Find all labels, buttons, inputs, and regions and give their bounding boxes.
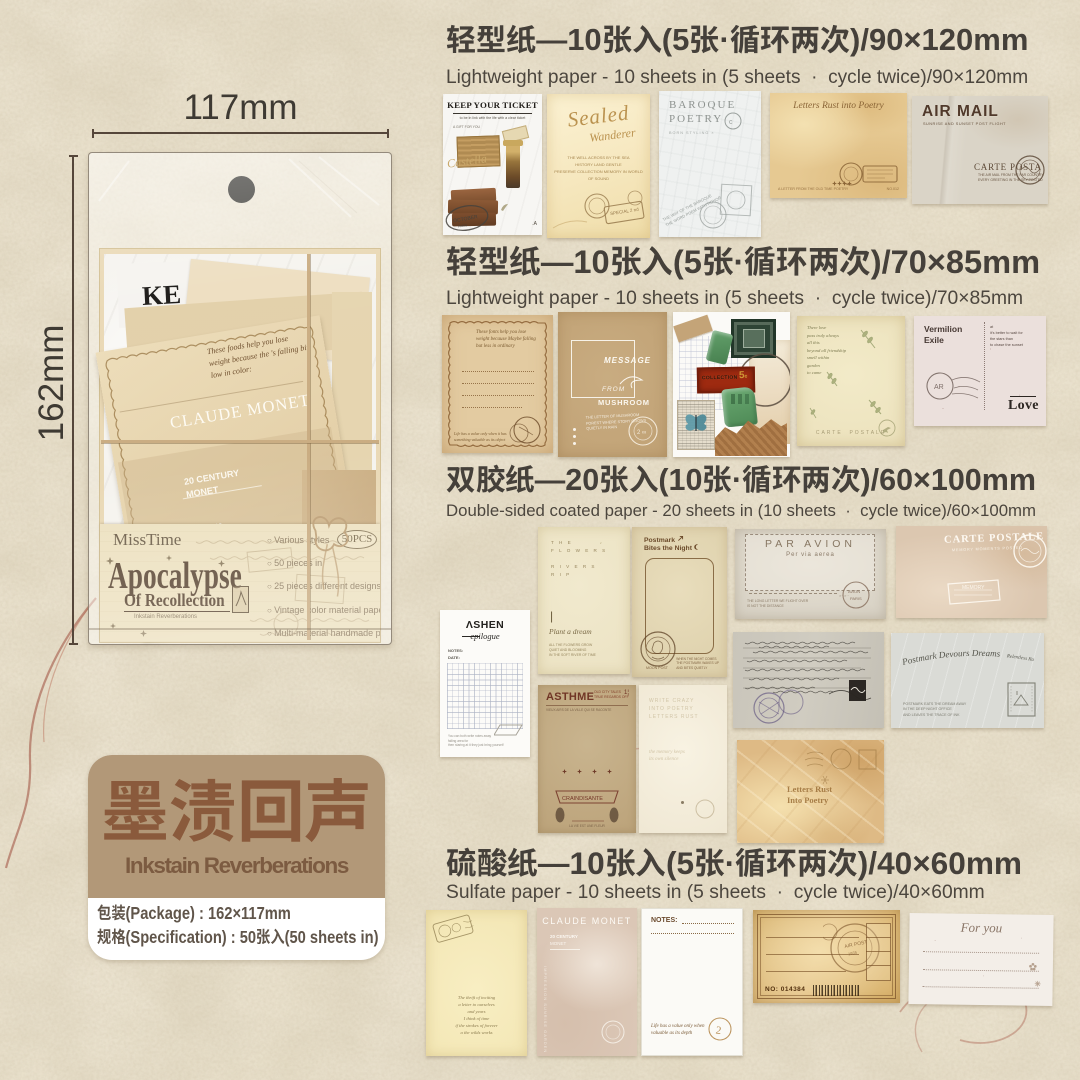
svg-text:2: 2 bbox=[715, 1024, 722, 1037]
svg-text:AVION: AVION bbox=[848, 589, 860, 594]
svg-text:PARIS: PARIS bbox=[850, 596, 862, 601]
svg-text:AR: AR bbox=[934, 384, 944, 391]
svg-text:CRAINDISANTE: CRAINDISANTE bbox=[562, 796, 603, 802]
svg-text:MEMORY: MEMORY bbox=[962, 585, 985, 591]
svg-text:2 ∞: 2 ∞ bbox=[637, 430, 646, 436]
svg-text:AIR POST: AIR POST bbox=[844, 939, 868, 950]
svg-text:c: c bbox=[729, 119, 733, 126]
svg-text:PARIS: PARIS bbox=[458, 223, 467, 228]
svg-text:SPECIAL 2 nd: SPECIAL 2 nd bbox=[610, 207, 640, 217]
svg-text:Postmark Devours Dreams Rele: Postmark Devours Dreams Relentless Rathe… bbox=[891, 633, 1035, 667]
svg-text:1935: 1935 bbox=[848, 950, 859, 957]
